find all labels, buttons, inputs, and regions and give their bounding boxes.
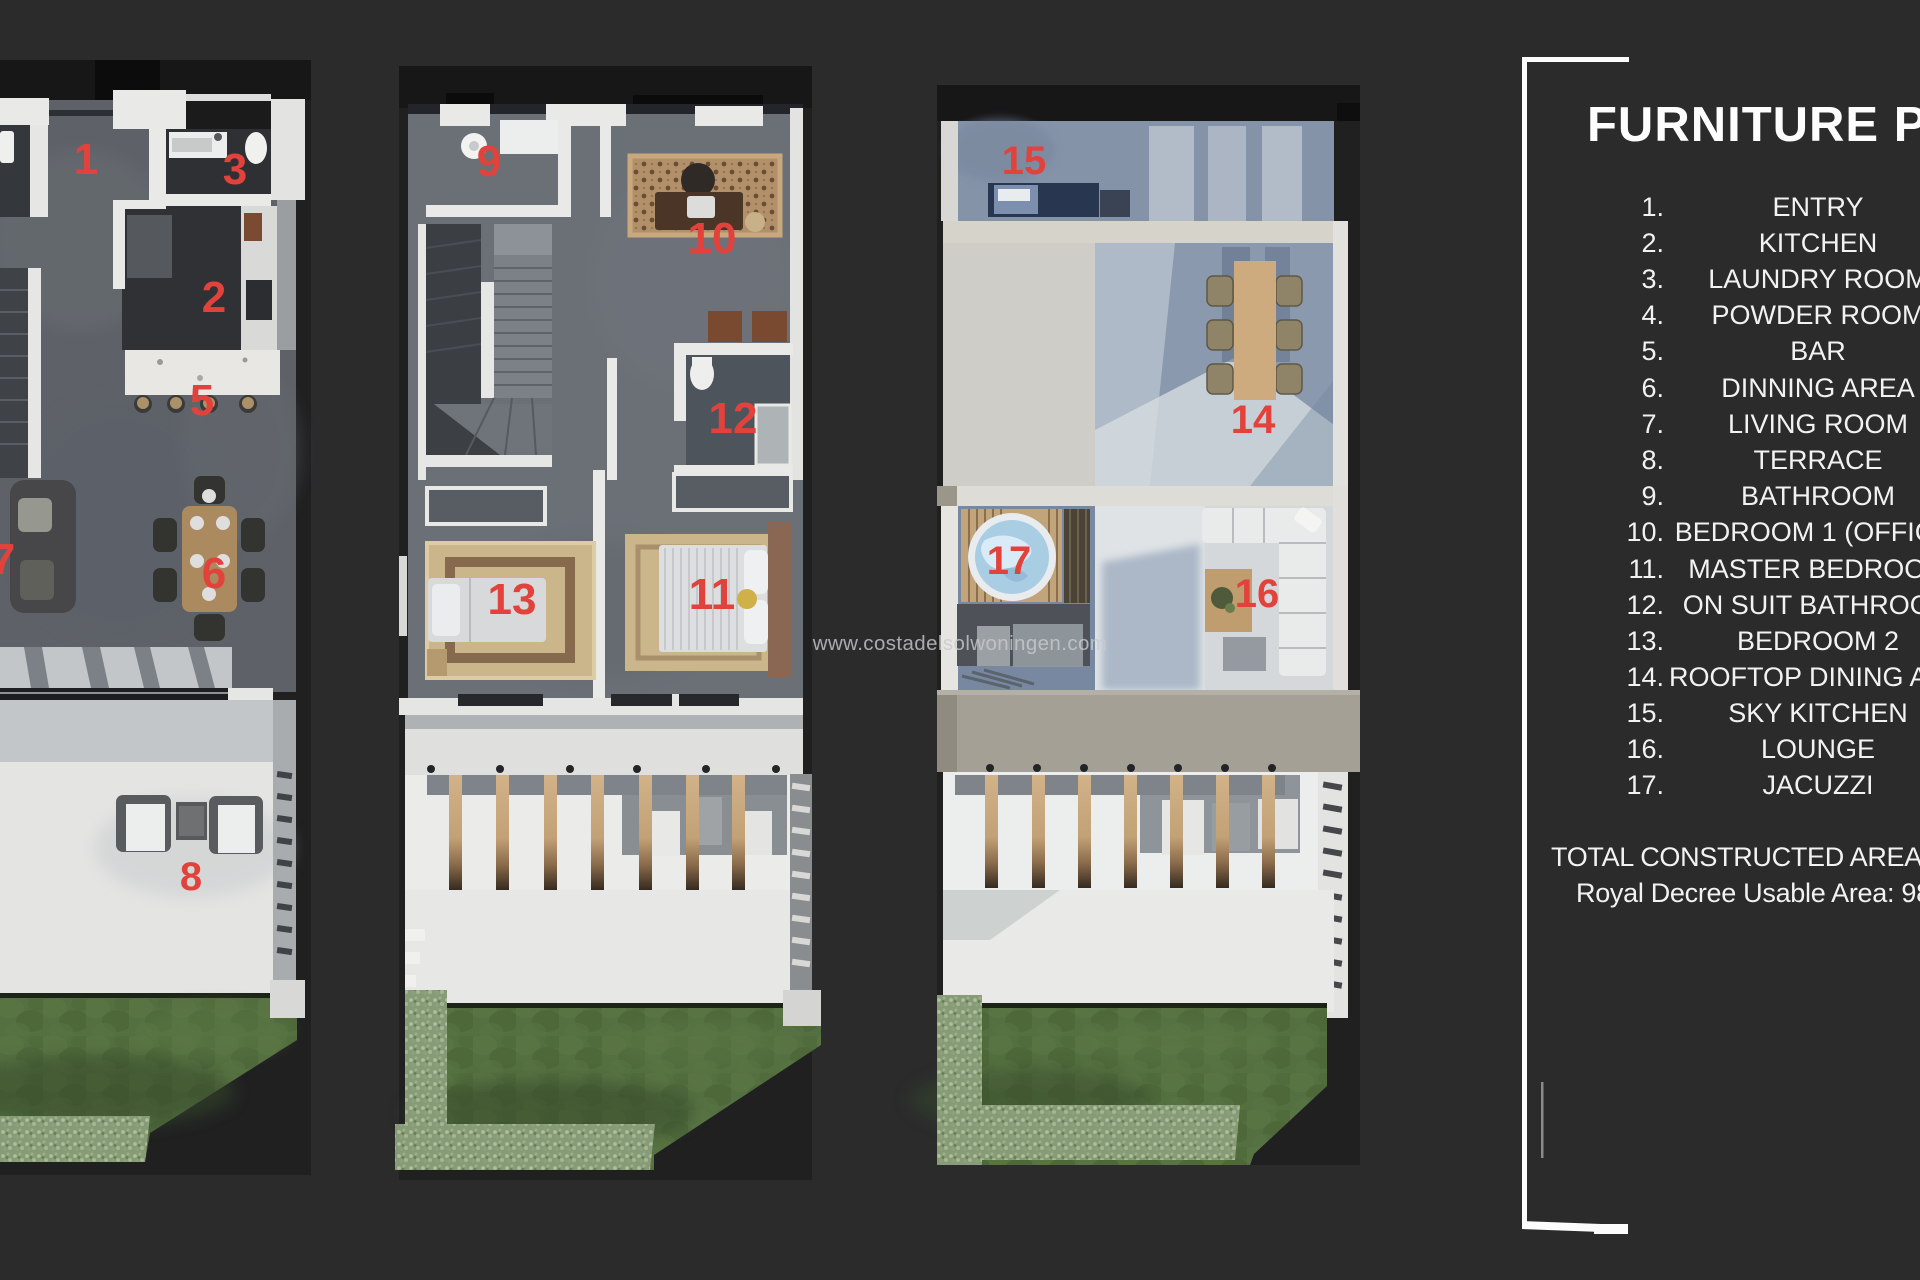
svg-text:www.costadelsolwoningen.com: www.costadelsolwoningen.com [812,632,1108,655]
svg-text:14: 14 [1231,398,1276,442]
svg-text:TERRACE: TERRACE [1753,445,1882,475]
svg-text:12.: 12. [1626,590,1664,620]
svg-text:2: 2 [202,273,226,322]
svg-text:8: 8 [180,855,202,899]
svg-text:17: 17 [987,539,1032,583]
svg-text:TOTAL CONSTRUCTED AREA: 160 M2: TOTAL CONSTRUCTED AREA: 160 M2 [1551,842,1920,872]
svg-text:BAR: BAR [1790,336,1846,366]
svg-text:Royal Decree Usable Area: 98 M: Royal Decree Usable Area: 98 M2 [1576,878,1920,908]
svg-text:JACUZZI: JACUZZI [1763,770,1874,800]
svg-text:BEDROOM 2: BEDROOM 2 [1737,626,1899,656]
svg-text:9.: 9. [1641,481,1664,511]
svg-text:9: 9 [477,137,501,186]
svg-text:SKY KITCHEN: SKY KITCHEN [1728,698,1908,728]
svg-text:13: 13 [488,575,537,624]
svg-text:10: 10 [688,214,737,263]
svg-text:5: 5 [190,376,214,425]
svg-text:1.: 1. [1641,192,1664,222]
svg-text:7: 7 [0,535,15,584]
svg-text:2.: 2. [1641,228,1664,258]
svg-text:12: 12 [709,394,758,443]
svg-text:POWDER ROOM: POWDER ROOM [1712,300,1920,330]
svg-text:15.: 15. [1626,698,1664,728]
svg-text:17.: 17. [1626,770,1664,800]
svg-text:ROOFTOP DINING AREA: ROOFTOP DINING AREA [1669,662,1920,692]
svg-text:6: 6 [202,549,226,598]
svg-text:6.: 6. [1641,373,1664,403]
svg-text:KITCHEN: KITCHEN [1759,228,1878,258]
svg-text:3.: 3. [1641,264,1664,294]
svg-text:15: 15 [1002,139,1047,183]
svg-text:13.: 13. [1626,626,1664,656]
svg-text:8.: 8. [1641,445,1664,475]
svg-text:LOUNGE: LOUNGE [1761,734,1875,764]
svg-text:BATHROOM: BATHROOM [1741,481,1895,511]
svg-text:16: 16 [1235,572,1280,616]
svg-text:MASTER BEDROOM: MASTER BEDROOM [1688,554,1920,584]
svg-text:14.: 14. [1626,662,1664,692]
svg-text:LIVING ROOM: LIVING ROOM [1728,409,1908,439]
svg-text:10.: 10. [1626,517,1664,547]
svg-text:ENTRY: ENTRY [1772,192,1863,222]
svg-text:LAUNDRY ROOM: LAUNDRY ROOM [1708,264,1920,294]
svg-text:11.: 11. [1628,554,1664,584]
svg-text:7.: 7. [1641,409,1664,439]
svg-text:BEDROOM 1 (OFFICE): BEDROOM 1 (OFFICE) [1675,517,1920,547]
svg-text:3: 3 [223,145,247,194]
svg-text:11: 11 [689,570,736,619]
svg-text:DINNING AREA: DINNING AREA [1721,373,1915,403]
svg-text:5.: 5. [1641,336,1664,366]
svg-text:1: 1 [74,135,98,184]
svg-text:ON SUIT BATHROOM: ON SUIT BATHROOM [1683,590,1920,620]
svg-text:FURNITURE PLAN: FURNITURE PLAN [1587,98,1920,152]
svg-text:4.: 4. [1641,300,1664,330]
svg-text:16.: 16. [1626,734,1664,764]
